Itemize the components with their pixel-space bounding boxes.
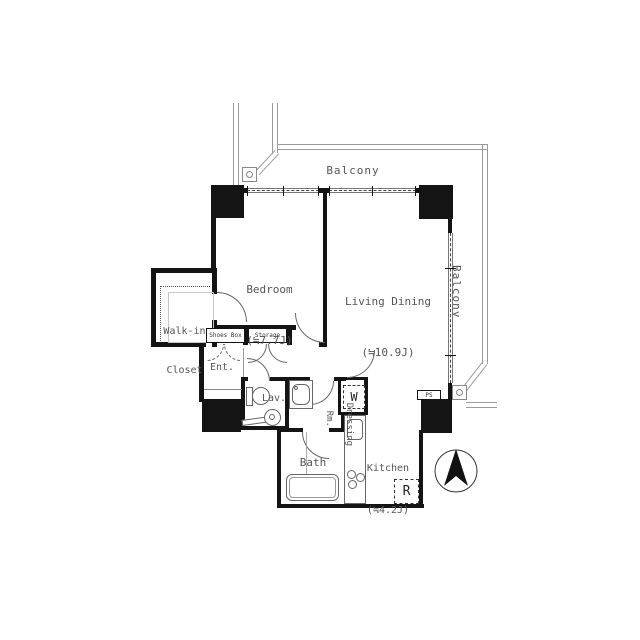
- wall-closet-top: [151, 268, 217, 273]
- living-dining-name: Living Dining: [327, 293, 449, 310]
- window-tick: [329, 186, 330, 196]
- balcony-top-label: Balcony: [322, 163, 384, 178]
- balcony-rail: [233, 103, 239, 186]
- window-tick: [318, 186, 319, 196]
- dressing-room-name-line2: Rm.: [324, 411, 334, 427]
- window-tick: [415, 186, 416, 196]
- washbasin-faucet: [294, 386, 298, 390]
- kitchen-name: Kitchen: [354, 462, 422, 476]
- entrance-label: Ent.: [206, 360, 238, 375]
- compass-north-icon: [430, 445, 482, 497]
- wall-bath-left: [277, 428, 281, 508]
- window-tick: [283, 186, 284, 196]
- balcony-drain: [242, 167, 257, 182]
- dressing-room-name-line1: Dressing: [344, 403, 354, 446]
- balcony-rail: [277, 144, 488, 150]
- window-tick: [247, 186, 248, 196]
- bath-label: Bath: [283, 455, 343, 470]
- pillar-bottom-right: [421, 399, 452, 433]
- bedroom-size: (≒7.7J): [216, 332, 323, 349]
- balcony-rail: [482, 144, 488, 364]
- lavatory-label: Lav.: [261, 391, 287, 406]
- balcony-rail: [466, 402, 497, 408]
- dressing-room-label: Dressing Rm.: [314, 381, 364, 435]
- kitchen-size: (≒4.2J): [354, 504, 422, 518]
- floor-plan: Balcony Balcony PS: [0, 0, 640, 640]
- balcony-drain: [452, 385, 467, 400]
- living-dining-size: (≒10.9J): [327, 344, 449, 361]
- walk-in-closet-name-line1: Walk-in: [155, 325, 214, 338]
- bedroom-name: Bedroom: [216, 281, 323, 298]
- closet-rod-top: [160, 286, 210, 287]
- living-dining-label: Living Dining (≒10.9J): [327, 259, 449, 395]
- kitchen-label: Kitchen (≒4.2J): [354, 434, 422, 546]
- pillar-bottom-left: [202, 399, 241, 432]
- wall-living-right-stub-a: [448, 219, 452, 233]
- window-tick: [372, 186, 373, 196]
- bathtub-inner: [289, 477, 336, 498]
- lavatory-basin-drain: [269, 414, 275, 420]
- balcony-rail-diagonal: [255, 150, 279, 175]
- walk-in-closet-label: Walk-in Closet: [155, 299, 214, 403]
